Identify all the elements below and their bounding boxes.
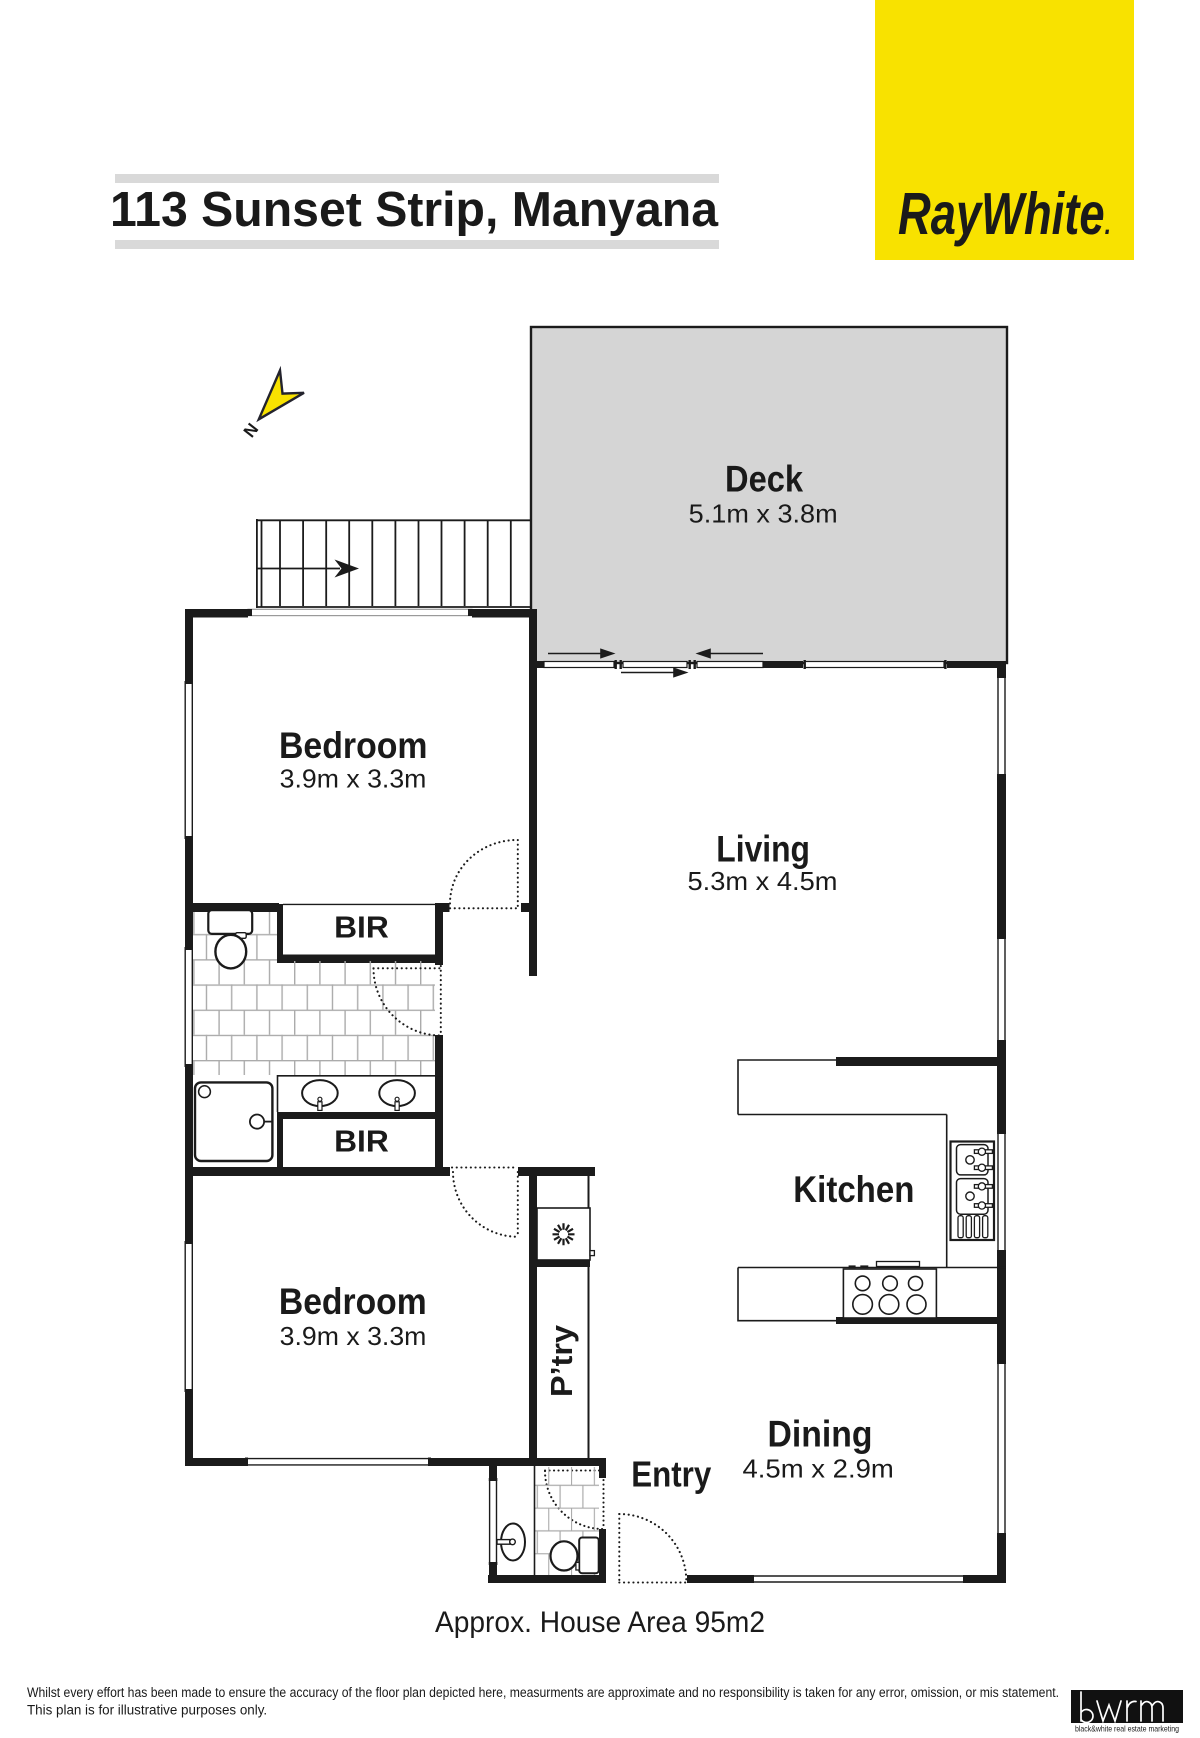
svg-text:Whilst every effort has been m: Whilst every effort has been made to ens…: [27, 1685, 1059, 1700]
svg-text:Bedroom: Bedroom: [279, 725, 428, 766]
svg-text:BIR: BIR: [334, 910, 389, 945]
svg-text:Dining: Dining: [768, 1413, 873, 1454]
svg-text:BIR: BIR: [334, 1123, 389, 1158]
svg-text:Kitchen: Kitchen: [793, 1169, 914, 1210]
svg-text:black&white real estate market: black&white real estate marketing: [1075, 1725, 1179, 1734]
svg-text:5.1m x 3.8m: 5.1m x 3.8m: [689, 499, 838, 529]
svg-text:5.3m x 4.5m: 5.3m x 4.5m: [688, 866, 838, 896]
svg-text:Entry: Entry: [631, 1454, 711, 1495]
svg-text:Living: Living: [716, 828, 810, 869]
svg-text:Approx. House Area 95m2: Approx. House Area 95m2: [435, 1606, 765, 1639]
svg-text:Deck: Deck: [725, 458, 803, 499]
svg-text:RayWhite.: RayWhite.: [898, 181, 1111, 247]
svg-text:3.9m x 3.3m: 3.9m x 3.3m: [280, 763, 427, 793]
svg-text:113 Sunset Strip, Manyana: 113 Sunset Strip, Manyana: [110, 183, 719, 237]
svg-text:4.5m x 2.9m: 4.5m x 2.9m: [743, 1454, 894, 1484]
svg-text:P’try: P’try: [544, 1324, 579, 1397]
svg-text:Bedroom: Bedroom: [279, 1281, 427, 1322]
svg-text:3.9m x 3.3m: 3.9m x 3.3m: [280, 1321, 427, 1351]
svg-text:This plan is for illustrative: This plan is for illustrative purposes o…: [27, 1703, 267, 1718]
